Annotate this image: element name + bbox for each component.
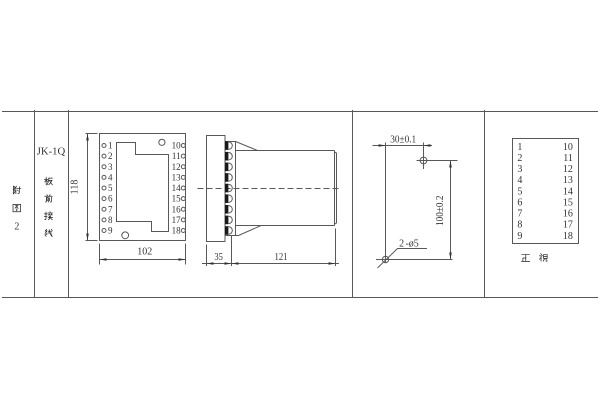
svg-text:102: 102 [137, 246, 152, 257]
svg-text:12: 12 [563, 164, 573, 175]
svg-text:9: 9 [517, 231, 522, 242]
svg-text:18: 18 [172, 226, 182, 236]
svg-text:4: 4 [108, 172, 113, 182]
svg-text:16: 16 [172, 204, 182, 214]
svg-text:12: 12 [172, 162, 181, 172]
svg-text:5: 5 [108, 183, 113, 193]
svg-text:3: 3 [108, 162, 113, 172]
svg-text:100±0.2: 100±0.2 [435, 196, 446, 227]
svg-text:14: 14 [172, 183, 182, 193]
svg-text:JK-1Q: JK-1Q [37, 146, 66, 158]
svg-text:11: 11 [563, 153, 573, 164]
svg-text:10: 10 [563, 142, 573, 153]
svg-text:14: 14 [563, 186, 573, 197]
svg-text:6: 6 [108, 194, 113, 204]
svg-text:10: 10 [172, 141, 182, 151]
svg-text:13: 13 [563, 175, 573, 186]
svg-text:30±0.1: 30±0.1 [390, 134, 416, 145]
svg-text:3: 3 [517, 164, 522, 175]
svg-text:11: 11 [172, 151, 181, 161]
svg-text:2-ø5: 2-ø5 [399, 238, 419, 249]
svg-text:8: 8 [108, 215, 113, 225]
svg-text:7: 7 [517, 209, 522, 220]
svg-text:118: 118 [70, 180, 81, 195]
svg-text:121: 121 [275, 252, 288, 263]
svg-text:4: 4 [517, 175, 522, 186]
svg-text:13: 13 [172, 172, 182, 182]
svg-text:17: 17 [172, 215, 182, 225]
svg-text:35: 35 [214, 252, 223, 263]
svg-text:15: 15 [172, 194, 182, 204]
svg-text:1: 1 [108, 141, 113, 151]
svg-text:2: 2 [108, 151, 113, 161]
svg-text:9: 9 [108, 226, 113, 236]
svg-text:16: 16 [563, 209, 573, 220]
svg-text:8: 8 [517, 220, 522, 231]
svg-text:15: 15 [563, 197, 573, 208]
svg-text:2: 2 [517, 153, 522, 164]
svg-text:2: 2 [14, 221, 19, 232]
svg-text:18: 18 [563, 231, 573, 242]
svg-text:7: 7 [108, 204, 113, 214]
svg-text:6: 6 [517, 197, 522, 208]
svg-text:17: 17 [563, 220, 573, 231]
svg-text:5: 5 [517, 186, 522, 197]
svg-text:1: 1 [517, 142, 522, 153]
